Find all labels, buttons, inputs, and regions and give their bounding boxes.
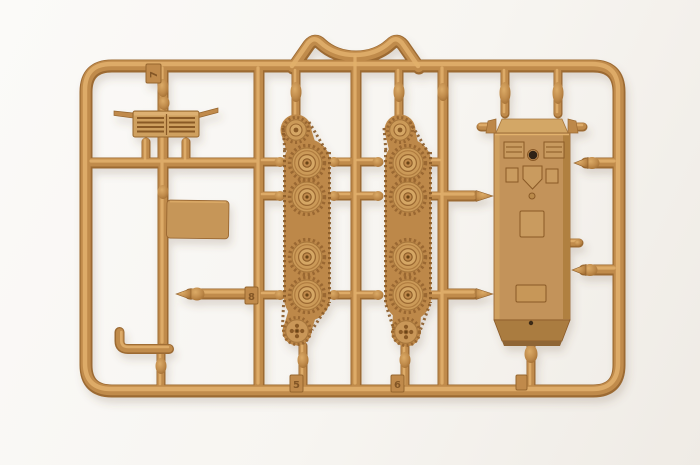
track-run-left	[281, 115, 330, 346]
hull-deck-right-shade	[563, 134, 570, 319]
hull-hatch-small-right	[544, 142, 564, 158]
hull-panel-right	[546, 169, 558, 183]
hull-front-lug-left	[486, 119, 496, 133]
grille-right-wing	[199, 108, 218, 118]
tag-blank	[516, 375, 527, 390]
sprue-photo: 7 8 5 6	[0, 0, 700, 465]
track-run-right	[384, 115, 431, 347]
hull-front-lug-right	[568, 119, 578, 133]
tag-8-number: 8	[248, 292, 255, 303]
flat-plate-part	[166, 200, 229, 239]
grille-left-wing	[114, 111, 133, 118]
hull-hatch-large	[520, 211, 544, 237]
photo-stage: 7 8 5 6	[0, 0, 700, 465]
hull-hatch-small-left	[504, 142, 524, 158]
sprue: 7 8 5 6	[85, 39, 619, 392]
hull-small-disc	[529, 193, 535, 199]
hull-deck-left-light	[495, 134, 500, 319]
engine-grille-part	[114, 108, 218, 137]
hull-side-stub	[574, 240, 582, 246]
tag-6-number: 6	[394, 380, 401, 391]
hull-panel-left	[506, 168, 518, 182]
hull-top-part	[486, 119, 582, 346]
tag-5-number: 5	[293, 380, 300, 391]
hull-glacis	[496, 119, 568, 133]
hull-engine-panel	[516, 285, 546, 302]
hull-rear-lip	[502, 341, 562, 346]
hull-hole	[529, 151, 538, 160]
hull-rear-hole	[529, 321, 533, 325]
tag-7-number: 7	[149, 71, 160, 78]
